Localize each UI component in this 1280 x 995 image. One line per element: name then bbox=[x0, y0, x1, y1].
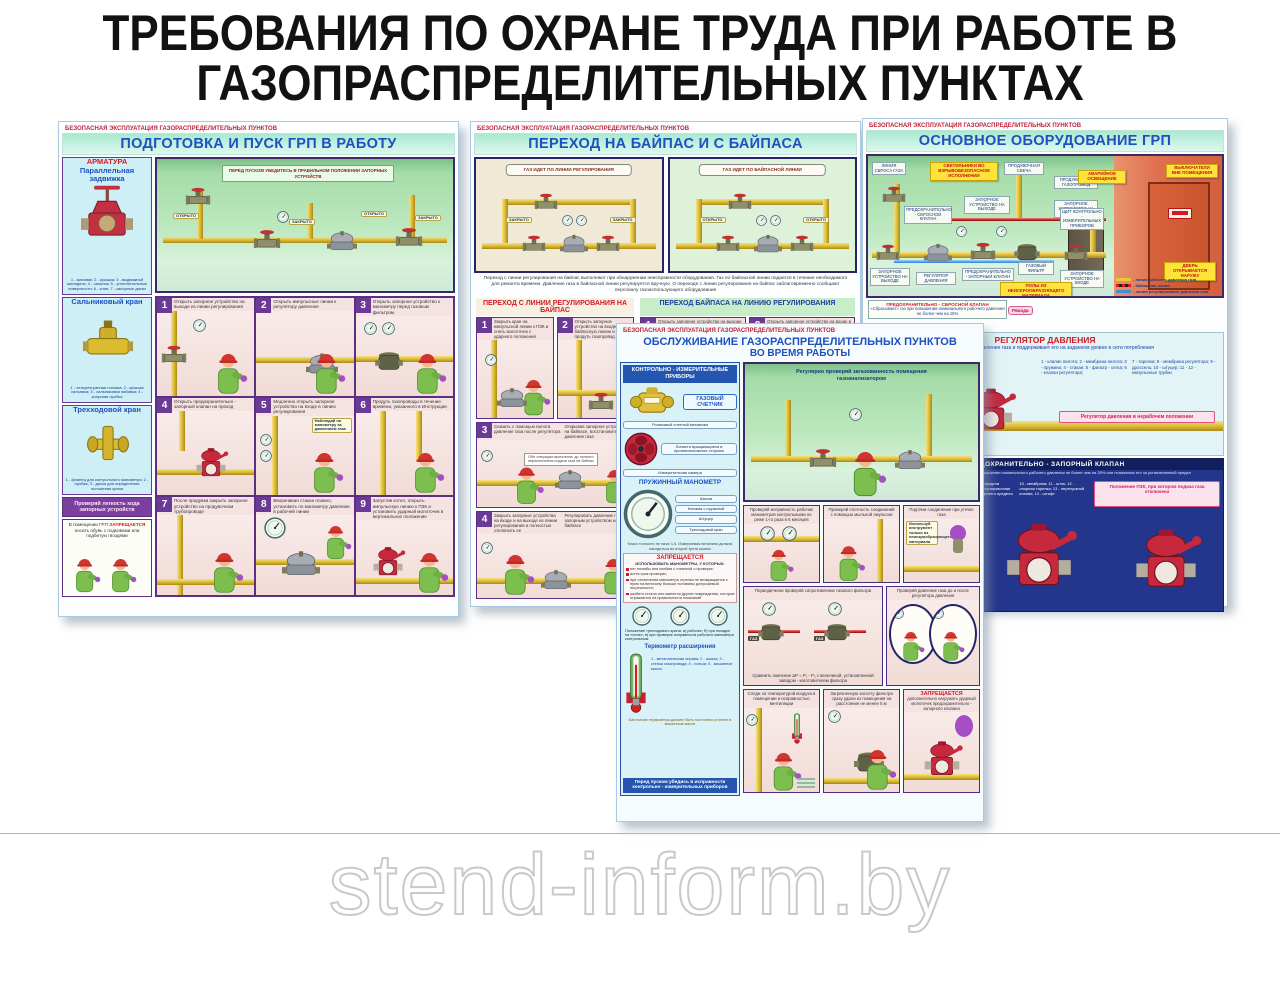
panel-pressure-before-after: Проверяй давление газа до и после регуля… bbox=[886, 586, 980, 686]
manometer-title: ПРУЖИННЫЙ МАНОМЕТР bbox=[623, 479, 737, 486]
legend-row: - байпасная линия bbox=[1116, 283, 1218, 288]
schematic-label: ГАЗ ИДЕТ ПО ЛИНИИ РЕГУЛИРОВАНИЯ bbox=[506, 164, 632, 176]
step-caption: Закрыть кран на импульсной линии к ПЗК и… bbox=[494, 319, 551, 339]
p-in-label: Рвхода bbox=[1008, 306, 1033, 315]
maintenance-scene: Регулярно проверяй загазованность помеще… bbox=[743, 362, 980, 502]
panels-row-a: Проверяй исправность рабочих манометров … bbox=[743, 505, 980, 583]
pzk-icon bbox=[970, 242, 996, 264]
panel-temperature-ventilation: Следи за температурой воздуха в помещени… bbox=[743, 689, 820, 793]
instruments-sidebar: КОНТРОЛЬНО - ИЗМЕРИТЕЛЬНЫЕ ПРИБОРЫ ГАЗОВ… bbox=[620, 362, 740, 796]
footwear-warning: В помещении ГРП ЗАПРЕЩАЕТСЯ носить обувь… bbox=[62, 519, 152, 597]
step5-note: Наблюдай по манометру за давлением газа bbox=[312, 418, 352, 433]
panel-art bbox=[904, 712, 979, 793]
step-caption: Открыть предохранительно - запорный клап… bbox=[174, 399, 252, 410]
panels-row-b: Периодически проверяй сопротивление газо… bbox=[743, 586, 980, 686]
pipe bbox=[1016, 174, 1022, 218]
scene-label: ЗАПОРНОЕ УСТРОЙСТВО НА ВЫХОДЕ bbox=[964, 196, 1010, 214]
poster3-series-label: БЕЗОПАСНАЯ ЭКСПЛУАТАЦИЯ ГАЗОРАСПРЕДЕЛИТЕ… bbox=[866, 122, 1224, 130]
scene-banner: ПЕРЕД ПУСКОМ УБЕДИТЕСЬ В ПРАВИЛЬНОМ ПОЛО… bbox=[222, 165, 394, 182]
worker-icon bbox=[899, 628, 925, 662]
gas-meter-label: ГАЗОВЫЙ СЧЕТЧИК bbox=[683, 394, 737, 410]
step-caption: Вворачивая стакан плавно, установить по … bbox=[273, 498, 351, 514]
poster1-body: АРМАТУРА Параллельная задвижка 1 - махов… bbox=[62, 157, 455, 597]
vent-grille bbox=[797, 778, 815, 788]
valve-icon bbox=[185, 187, 211, 209]
step-number: 9 bbox=[356, 497, 371, 512]
bypass-paragraph: Переход с линии регулирования на байпас … bbox=[474, 273, 857, 297]
scene-label: ГАЗОВЫЙ ФИЛЬТР bbox=[1018, 262, 1054, 275]
filter-icon bbox=[1014, 242, 1040, 264]
step-number: 2 bbox=[256, 298, 271, 313]
panel-forbidden-hammer: ЗАПРЕЩАЕТСЯдополнительно нагружать ударн… bbox=[903, 689, 980, 793]
step-number: 5 bbox=[256, 398, 271, 413]
gauge-icon bbox=[382, 322, 395, 335]
forbidden-item: разбито стекло или имеются другие повреж… bbox=[625, 592, 735, 601]
pzk-cutaway bbox=[1127, 527, 1205, 609]
poster1-title: ПОДГОТОВКА И ПУСК ГРП В РАБОТУ bbox=[62, 133, 455, 155]
worker-icon bbox=[409, 447, 445, 495]
step-caption: Открыть запорное устройство к манометру … bbox=[373, 299, 451, 315]
panel-caption: дополнительно нагружать ударный молоточе… bbox=[904, 697, 979, 711]
step-art bbox=[477, 340, 553, 418]
panel-art bbox=[824, 519, 899, 582]
panel-art: Используй инструмент только из неискрооб… bbox=[904, 519, 979, 582]
psk-note: ПРЕДОХРАНИТЕЛЬНО - СБРОСНОЙ КЛАПАН «Сбра… bbox=[868, 300, 1007, 319]
valve-icon bbox=[522, 235, 546, 255]
schematic-label: ГАЗ ИДЕТ ПО БАЙПАСНОЙ ЛИНИИ bbox=[699, 164, 825, 176]
poster1-sidebar: АРМАТУРА Параллельная задвижка 1 - махов… bbox=[62, 157, 152, 597]
panel-art: ГАЗ ГАЗ Сравнить значение ΔР = Р₁ - Р₂ с… bbox=[744, 600, 882, 685]
poster4-title-line1: ОБСЛУЖИВАНИЕ ГАЗОРАСПРЕДЕЛИТЕЛЬНЫХ ПУНКТ… bbox=[620, 336, 980, 348]
legend-row: - линия рабочего давления газа bbox=[1116, 277, 1218, 282]
schematic-bypass-line: ГАЗ ИДЕТ ПО БАЙПАСНОЙ ЛИНИИ ОТКРЫТО ОТКР… bbox=[668, 157, 858, 273]
pipe bbox=[502, 199, 636, 205]
valve-state-label: ОТКРЫТО bbox=[173, 213, 199, 219]
worker-icon bbox=[310, 348, 346, 396]
regulator-note: Регулятор давления в нерабочем положении bbox=[1059, 411, 1215, 423]
sidebar-footer: Перед пуском убедись в исправности контр… bbox=[623, 778, 737, 794]
valve-state-label: ОТКРЫТО bbox=[700, 217, 726, 223]
legend-swatch bbox=[1116, 278, 1131, 282]
poster4-series-label: БЕЗОПАСНАЯ ЭКСПЛУАТАЦИЯ ГАЗОРАСПРЕДЕЛИТЕ… bbox=[620, 327, 980, 335]
valve-icon bbox=[716, 235, 740, 255]
filter-icon bbox=[824, 622, 850, 644]
valve-icon bbox=[161, 345, 187, 367]
poster3-title: ОСНОВНОЕ ОБОРУДОВАНИЕ ГРП bbox=[866, 130, 1224, 152]
gas-meter-row: ГАЗОВЫЙ СЧЕТЧИК bbox=[623, 385, 737, 419]
three-way-diagram bbox=[85, 422, 131, 464]
valve-icon bbox=[728, 193, 752, 213]
step-art: Наблюдай по манометру за давлением газа bbox=[256, 416, 353, 496]
legend-label: - линия регулирования давления газа bbox=[1133, 289, 1208, 294]
three-way-cock-section: Трехходовой кран 1 - фланец для контроль… bbox=[62, 405, 152, 495]
forbidden-subtitle: ИСПОЛЬЗОВАТЬ МАНОМЕТРЫ, У КОТОРЫХ: bbox=[625, 561, 735, 566]
gauge-icon bbox=[264, 517, 286, 539]
to-bypass-header: ПЕРЕХОД С ЛИНИИ РЕГУЛИРОВАНИЯ НА БАЙПАС bbox=[476, 298, 634, 316]
thermometer-title: Термометр расширения bbox=[623, 644, 737, 650]
scene-callout: АВАРИЙНОЕ ОСВЕЩЕНИЕ bbox=[1078, 170, 1126, 184]
panels-row-c: Следи за температурой воздуха в помещени… bbox=[743, 689, 980, 793]
scene-label: ПРЕДОХРАНИТЕЛЬНО - СБРОСНОЙ КЛАПАН bbox=[904, 206, 952, 224]
gas-label: ГАЗ bbox=[748, 636, 759, 641]
panel-art bbox=[744, 524, 819, 582]
valve-icon bbox=[876, 244, 900, 264]
steps-grid: 1Открыть запорное устройство на выходе и… bbox=[155, 296, 455, 597]
poster2-series-label: БЕЗОПАСНАЯ ЭКСПЛУАТАЦИЯ ГАЗОРАСПРЕДЕЛИТЕ… bbox=[474, 125, 857, 133]
legend-row: - линия регулирования давления газа bbox=[1116, 289, 1218, 294]
poster2-title: ПЕРЕХОД НА БАЙПАС И С БАЙПАСА bbox=[474, 133, 857, 155]
rotor-cutaway-icon bbox=[623, 431, 659, 467]
gauge-icon bbox=[770, 215, 781, 226]
vignette bbox=[929, 604, 977, 664]
page-title-line1: ТРЕБОВАНИЯ ПО ОХРАНЕ ТРУДА ПРИ РАБОТЕ В bbox=[77, 8, 1203, 58]
step-art: Обе операции выполнять до полного перекл… bbox=[477, 440, 633, 507]
gauge-icon bbox=[485, 354, 497, 366]
page-title-line2: ГАЗОПРАСПРЕДЕЛИТЕЛЬНЫХ ПУНКТАХ bbox=[77, 58, 1203, 108]
step-art bbox=[356, 316, 453, 396]
step-caption: Продуть газопроводы в течение времени, у… bbox=[373, 399, 451, 410]
legend-label: - линия рабочего давления газа bbox=[1133, 277, 1196, 282]
grp-room-scene: ПЕРЕД ПУСКОМ УБЕДИТЕСЬ В ПРАВИЛЬНОМ ПОЛО… bbox=[155, 157, 455, 293]
scene-callout: ВЫКЛЮЧАТЕЛИ ВНЕ ПОМЕЩЕНИЯ bbox=[1166, 164, 1218, 178]
scene-label: ЩИТ КОНТРОЛЬНО - ИЗМЕРИТЕЛЬНЫХ ПРИБОРОВ bbox=[1060, 208, 1104, 230]
regulator-icon bbox=[497, 386, 527, 412]
rotor-row: Лопасти вращающиеся в противоположные ст… bbox=[623, 431, 737, 467]
step-panel-4: 4Открыть предохранительно - запорный кла… bbox=[157, 398, 254, 496]
gauge-icon bbox=[562, 215, 573, 226]
gauge-icon bbox=[260, 434, 272, 446]
captions: Закрыть запорные устройства на входе и н… bbox=[477, 512, 633, 534]
bypass-step-3: 3 Снизить с помощью пилота давление газа… bbox=[476, 422, 634, 508]
regulator-icon bbox=[541, 568, 571, 594]
step-panel-7: 7После продувки закрыть запорное устройс… bbox=[157, 497, 254, 595]
scene-label: РЕГУЛЯТОР ДАВЛЕНИЯ bbox=[916, 272, 956, 285]
gauge-icon bbox=[828, 710, 841, 723]
pipe bbox=[380, 411, 386, 496]
pipe bbox=[576, 340, 582, 418]
panel-caption: Загрязненную кассету фильтра сразу удали… bbox=[824, 690, 899, 708]
panel-caption: Подтяни соединение при утечке газа bbox=[904, 506, 979, 519]
valve-icon bbox=[253, 229, 281, 253]
pipe bbox=[926, 394, 932, 456]
valve-icon bbox=[534, 193, 558, 213]
pzk-valve-icon bbox=[187, 447, 235, 487]
scene-callout: СВЕТИЛЬНИКИ ВО ВЗРЫВОБЕЗОПАСНОМ ИСПОЛНЕН… bbox=[930, 162, 998, 181]
valve-state-label: ЗАКРЫТО bbox=[415, 215, 441, 221]
three-way-title: Трехходовой кран bbox=[63, 406, 151, 415]
gauge-icon bbox=[760, 526, 775, 541]
panel-caption: Проверяй исправность рабочих манометров … bbox=[744, 506, 819, 524]
poster-startup-grp: БЕЗОПАСНАЯ ЭКСПЛУАТАЦИЯ ГАЗОРАСПРЕДЕЛИТЕ… bbox=[58, 121, 459, 617]
scene-label: ПРЕДОХРАНИТЕЛЬНО - ЗАПОРНЫЙ КЛАПАН bbox=[962, 268, 1014, 281]
steps-row: 1Закрыть кран на импульсной линии к ПЗК … bbox=[476, 317, 634, 419]
worker-icon bbox=[764, 546, 796, 582]
page-title: ТРЕБОВАНИЯ ПО ОХРАНЕ ТРУДА ПРИ РАБОТЕ В … bbox=[0, 8, 1280, 108]
gas-meter-caption-1: Роликовый счетный механизм bbox=[623, 421, 737, 429]
worker-icon bbox=[511, 463, 545, 505]
pipe bbox=[696, 199, 830, 205]
bypass-schematics: ГАЗ ИДЕТ ПО ЛИНИИ РЕГУЛИРОВАНИЯ ЗАКРЫТО … bbox=[474, 157, 857, 273]
pipe bbox=[904, 566, 979, 572]
worker-icon bbox=[939, 628, 965, 662]
pzk-parts-c: 10 - мембрана; 11 - шток; 12 - опорная т… bbox=[1019, 481, 1090, 507]
filter-icon bbox=[758, 622, 784, 644]
manometer-labels: Шкала Клемма с пружиной Штуцер Трехходов… bbox=[675, 495, 737, 535]
panel-caption: Проверяй плотность соединений с помощью … bbox=[824, 506, 899, 519]
gas-meter-caption-3: Измерительная камера bbox=[623, 469, 737, 477]
legend-swatch bbox=[1116, 290, 1131, 294]
filter-compare-note: Сравнить значение ΔР = Р₁ - Р₂ с величин… bbox=[744, 672, 882, 685]
step-panel-9: 9Запустив котел, открыть импульсную лини… bbox=[356, 497, 453, 595]
valve-state-label: ЗАКРЫТО bbox=[610, 217, 636, 223]
warning-text-c: носить обувь с подковами или подбитую гв… bbox=[75, 528, 140, 539]
scene-label: ЗАПОРНОЕ УСТРОЙСТВО НА ВЫХОДЕ bbox=[870, 268, 910, 286]
worker-icon bbox=[861, 744, 897, 792]
manometer-icon bbox=[623, 489, 673, 539]
regulator-icon bbox=[555, 468, 585, 494]
step-caption: Запустив котел, открыть импульсную линию… bbox=[373, 498, 451, 519]
poster4-main: Регулярно проверяй загазованность помеще… bbox=[743, 362, 980, 796]
valve-icon bbox=[588, 392, 614, 414]
worker-icon bbox=[413, 547, 449, 595]
poster4-title-line2: ВО ВРЕМЯ РАБОТЫ bbox=[620, 348, 980, 359]
regulator-parts: 1 - клапан пилота; 2 - мембрана пилота; … bbox=[1041, 359, 1219, 376]
legend-label: - байпасная линия bbox=[1133, 283, 1170, 288]
poster-maintenance: БЕЗОПАСНАЯ ЭКСПЛУАТАЦИЯ ГАЗОРАСПРЕДЕЛИТЕ… bbox=[616, 323, 984, 822]
scene-callout: ПОЛЫ ИЗ НЕИСКРООБРАЗУЮЩЕГО МАТЕРИАЛА bbox=[1000, 282, 1072, 298]
valve-icon bbox=[809, 448, 837, 472]
panel-remove-cassette: Загрязненную кассету фильтра сразу удали… bbox=[823, 689, 900, 793]
regulator-icon bbox=[895, 448, 925, 474]
step-caption: После продувки закрыть запорное устройст… bbox=[174, 498, 252, 514]
panel-caption: Проверяй давление газа до и после регуля… bbox=[887, 587, 979, 600]
step-art bbox=[356, 520, 453, 595]
pipe bbox=[877, 519, 883, 582]
pzk-valve-icon bbox=[366, 546, 410, 586]
valve-icon bbox=[596, 235, 620, 255]
gauge-icon bbox=[708, 606, 728, 626]
step-panel-1: 1Открыть запорное устройство на выходе и… bbox=[157, 298, 254, 396]
divider-line bbox=[0, 833, 1280, 834]
manometer-label-2: Клемма с пружиной bbox=[675, 505, 737, 513]
filter-icon bbox=[374, 350, 404, 374]
worker-icon bbox=[847, 446, 887, 498]
forbidden-item: нет пломбы или клейма с отметкой о прове… bbox=[625, 567, 735, 571]
legend-swatch bbox=[1116, 284, 1131, 288]
valve-state-label: ЗАКРЫТО bbox=[289, 219, 315, 225]
step-panel-2: 2Открыть импульсные линии к регулятору д… bbox=[256, 298, 353, 396]
panel-soap-emulsion: Проверяй плотность соединений с помощью … bbox=[823, 505, 900, 583]
step-extra-note: Обе операции выполнять до полного перекл… bbox=[524, 453, 598, 466]
step-number: 8 bbox=[256, 497, 271, 512]
scene-legend: - линия рабочего давления газа - байпасн… bbox=[1116, 276, 1218, 294]
poster4-title: ОБСЛУЖИВАНИЕ ГАЗОРАСПРЕДЕЛИТЕЛЬНЫХ ПУНКТ… bbox=[620, 336, 980, 359]
manometer-note: Класс точности не ниже 1,5. Измеряемая в… bbox=[623, 542, 737, 551]
gauge-icon bbox=[756, 215, 767, 226]
glove-icon bbox=[953, 714, 975, 738]
step-art bbox=[157, 515, 254, 595]
gauge-icon bbox=[762, 602, 776, 616]
gauge-icon bbox=[670, 606, 690, 626]
regulator-icon bbox=[282, 549, 320, 581]
pzk-note: Положение ПЗК, при котором подача газа о… bbox=[1094, 481, 1220, 507]
valve-state-label: ЗАКРЫТО bbox=[506, 217, 532, 223]
gas-label: ГАЗ bbox=[814, 636, 825, 641]
poster4-body: КОНТРОЛЬНО - ИЗМЕРИТЕЛЬНЫЕ ПРИБОРЫ ГАЗОВ… bbox=[620, 362, 980, 796]
manometer-label-1: Шкала bbox=[675, 495, 737, 503]
gauge-icon bbox=[782, 526, 797, 541]
gauge-icon bbox=[576, 215, 587, 226]
tool-note: Используй инструмент только из неискрооб… bbox=[906, 521, 938, 545]
step-caption: Открыть импульсные линии к регулятору да… bbox=[273, 299, 351, 310]
thermometer-parts: 1 - металлическая оправа; 2 - шкала; 3 -… bbox=[651, 652, 737, 671]
psk-note-text: «Сбрасывает» газ при повышении номинальн… bbox=[870, 307, 1005, 317]
worker-icon bbox=[208, 547, 244, 595]
step-number: 3 bbox=[477, 423, 492, 438]
gland-cock-caption: 1 - четырехгранная головка; 2 - крышка с… bbox=[63, 385, 151, 401]
step-number: 1 bbox=[477, 318, 492, 333]
gland-cock-section: Сальниковый кран 1 - четырехгранная голо… bbox=[62, 297, 152, 403]
safety-stand-photo: ТРЕБОВАНИЯ ПО ОХРАНЕ ТРУДА ПРИ РАБОТЕ В … bbox=[0, 0, 1280, 995]
step-number: 7 bbox=[157, 497, 172, 512]
regulator-icon bbox=[754, 233, 782, 257]
gauge-icon bbox=[996, 226, 1007, 237]
worker-icon bbox=[499, 550, 535, 596]
scene-label: ЛИНИЯ СБРОСА ГАЗА bbox=[872, 162, 906, 175]
worker-icon bbox=[834, 542, 866, 582]
instruments-header: КОНТРОЛЬНО - ИЗМЕРИТЕЛЬНЫЕ ПРИБОРЫ bbox=[623, 365, 737, 382]
step-art bbox=[477, 534, 633, 598]
regulator-parts-a: 1 - клапан пилота; 2 - мембрана пилота; … bbox=[1041, 359, 1128, 376]
gauge-icon bbox=[260, 450, 272, 462]
gate-valve-diagram bbox=[81, 178, 133, 248]
psk-valve-icon bbox=[882, 186, 906, 206]
panel-tighten-connection: Подтяни соединение при утечке газаИсполь… bbox=[903, 505, 980, 583]
step-number: 4 bbox=[477, 512, 492, 527]
step-art bbox=[256, 515, 353, 595]
watermark: stend-inform.by bbox=[0, 836, 1280, 935]
gland-cock-diagram bbox=[83, 316, 133, 364]
panel-caption: Следи за температурой воздуха в помещени… bbox=[744, 690, 819, 708]
gauge-icon bbox=[746, 714, 758, 726]
step-panel-6: 6Продуть газопроводы в течение времени, … bbox=[356, 398, 453, 496]
door-sign bbox=[1168, 208, 1192, 219]
pipe bbox=[785, 400, 791, 456]
panel-art bbox=[744, 708, 819, 792]
step-panel-8: 8Вворачивая стакан плавно, установить по… bbox=[256, 497, 353, 595]
valve-state-label: ОТКРЫТО bbox=[361, 211, 387, 217]
forbidden-item: истек срок проверки; bbox=[625, 572, 735, 576]
step-caption: Закрыть запорные устройства на входе и н… bbox=[494, 513, 561, 533]
scene-label: ПРОДУВОЧНАЯ СВЕЧА bbox=[1004, 162, 1044, 175]
regulator-icon bbox=[327, 229, 357, 255]
manometer-label-4: Трехходовой кран bbox=[675, 526, 737, 534]
glove-wrench-icon bbox=[945, 523, 971, 553]
forbidden-manometers: ЗАПРЕЩАЕТСЯ ИСПОЛЬЗОВАТЬ МАНОМЕТРЫ, У КО… bbox=[623, 553, 737, 603]
column-headers: ПЕРЕХОД С ЛИНИИ РЕГУЛИРОВАНИЯ НА БАЙПАС … bbox=[476, 298, 855, 316]
valve-icon bbox=[1064, 244, 1088, 264]
gauge-icon bbox=[632, 606, 652, 626]
captions: Снизить с помощью пилота давление газа п… bbox=[477, 423, 633, 440]
step-caption: Открыть запорное устройство на выходе из… bbox=[174, 299, 252, 310]
manometer-label-3: Штуцер bbox=[675, 515, 737, 523]
pzk-cutaway bbox=[997, 521, 1081, 609]
pipe bbox=[179, 411, 185, 451]
step-number: 3 bbox=[356, 298, 371, 313]
schematic-regulation-line: ГАЗ ИДЕТ ПО ЛИНИИ РЕГУЛИРОВАНИЯ ЗАКРЫТО … bbox=[474, 157, 664, 273]
pzk-valve-icon bbox=[920, 740, 964, 788]
gas-meter-icon bbox=[623, 385, 681, 419]
three-way-positions bbox=[623, 605, 737, 627]
step-panel-3: 3Открыть запорное устройство к манометру… bbox=[356, 298, 453, 396]
worker-icon bbox=[212, 348, 248, 396]
regulator-icon bbox=[924, 242, 952, 266]
valve-icon bbox=[790, 235, 814, 255]
regulator-parts-b: 7 - тарелки; 8 - мембрана регулятора; 9 … bbox=[1132, 359, 1219, 376]
thermometer-icon bbox=[791, 712, 803, 746]
to-bypass-column: 1Закрыть кран на импульсной линии к ПЗК … bbox=[476, 317, 634, 599]
scene-note: Регулярно проверяй загазованность помеще… bbox=[780, 369, 943, 382]
positions-note: Положение трехходового крана: а) рабочее… bbox=[623, 629, 737, 642]
worker-icon bbox=[411, 348, 447, 396]
step-number: 6 bbox=[356, 398, 371, 413]
thermometer-note: Баллончик термометра должен быть постоян… bbox=[623, 718, 737, 727]
gauge-icon bbox=[933, 608, 944, 619]
step-art bbox=[157, 411, 254, 496]
manometer-row: Шкала Клемма с пружиной Штуцер Трехходов… bbox=[623, 488, 737, 540]
poster1-series-label: БЕЗОПАСНАЯ ЭКСПЛУАТАЦИЯ ГАЗОРАСПРЕДЕЛИТЕ… bbox=[62, 125, 455, 133]
valve-icon bbox=[395, 227, 423, 251]
regulator-icon bbox=[560, 233, 588, 257]
gas-meter-caption-2: Лопасти вращающиеся в противоположные ст… bbox=[661, 443, 737, 456]
thermometer-row: 1 - металлическая оправа; 2 - шкала; 3 -… bbox=[623, 652, 737, 716]
pipe bbox=[272, 416, 278, 496]
gauge-icon bbox=[481, 450, 493, 462]
step-art bbox=[157, 311, 254, 396]
panel-caption: Периодически проверяй сопротивление газо… bbox=[744, 587, 882, 600]
armature-section: АРМАТУРА Параллельная задвижка 1 - махов… bbox=[62, 157, 152, 295]
warning-text-forbidden: ЗАПРЕЩАЕТСЯ bbox=[109, 522, 145, 527]
gauge-icon bbox=[828, 602, 842, 616]
gauge-icon bbox=[364, 322, 377, 335]
step-number: 2 bbox=[558, 318, 573, 333]
panel-art bbox=[824, 708, 899, 792]
thermometer-icon bbox=[623, 652, 649, 716]
step-art bbox=[356, 411, 453, 496]
equipment-room-scene: ЛИНИЯ СБРОСА ГАЗА СВЕТИЛЬНИКИ ВО ВЗРЫВОБ… bbox=[866, 154, 1224, 298]
three-way-caption: 1 - фланец для контрольного манометра; 2… bbox=[63, 477, 151, 493]
forbidden-item: при отключении манометра стрелка не возв… bbox=[625, 578, 735, 591]
worker-icon bbox=[322, 521, 352, 561]
step-art bbox=[256, 311, 353, 396]
bypass-step-1: 1Закрыть кран на импульсной линии к ПЗК … bbox=[476, 317, 554, 419]
check-valves-note: Проверяй легкость хода запорных устройст… bbox=[62, 497, 152, 517]
step-caption: Медленно открыть запорное устройство на … bbox=[273, 399, 351, 415]
gland-cock-title: Сальниковый кран bbox=[63, 298, 151, 307]
worker-figure bbox=[71, 554, 101, 594]
panel-filter-resistance: Периодически проверяй сопротивление газо… bbox=[743, 586, 883, 686]
gauge-icon bbox=[481, 542, 493, 554]
panel-art bbox=[887, 600, 979, 685]
panel-check-manometers: Проверяй исправность рабочих манометров … bbox=[743, 505, 820, 583]
bypass-step-4: 4 Закрыть запорные устройства на входе и… bbox=[476, 511, 634, 599]
gauge-icon bbox=[277, 211, 289, 223]
gauge-icon bbox=[893, 608, 904, 619]
poster1-main: ПЕРЕД ПУСКОМ УБЕДИТЕСЬ В ПРАВИЛЬНОМ ПОЛО… bbox=[155, 157, 455, 597]
valve-state-label: ОТКРЫТО bbox=[803, 217, 829, 223]
gauge-icon bbox=[956, 226, 967, 237]
from-bypass-header: ПЕРЕХОД БАЙПАСА НА ЛИНИЮ РЕГУЛИРОВАНИЯ bbox=[640, 298, 855, 316]
